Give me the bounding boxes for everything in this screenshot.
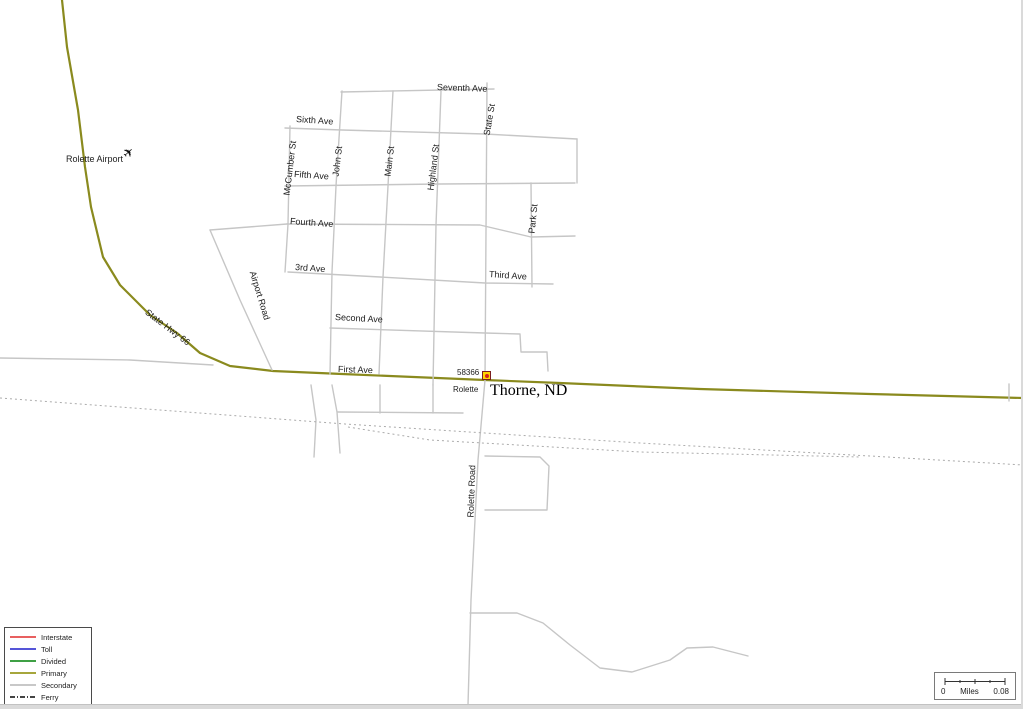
road-fourth-ave-west[interactable]: [210, 224, 287, 230]
map-label-first-ave: First Ave: [338, 365, 373, 375]
legend-swatch-icon: [10, 636, 36, 638]
road-park-st[interactable]: [531, 183, 532, 287]
map-label-seventh-ave: Seventh Ave: [437, 83, 488, 94]
legend-swatch-icon: [10, 672, 36, 674]
map-view[interactable]: Rolette AirportState Hwy 66Seventh AveSi…: [0, 0, 1023, 709]
legend-item-label: Toll: [41, 645, 52, 654]
legend-item-toll: Toll: [5, 643, 91, 655]
legend-item-divided: Divided: [5, 655, 91, 667]
road-south-lane-west[interactable]: [311, 385, 316, 457]
scale-ruler-icon: [939, 676, 1011, 687]
map-label-town-name: Rolette: [453, 386, 478, 394]
map-label-rolette-airport: Rolette Airport: [66, 155, 123, 164]
road-south-lane-east[interactable]: [332, 385, 340, 453]
scale-start: 0: [941, 687, 945, 696]
legend-swatch-icon: [10, 660, 36, 662]
road-sixth-ave[interactable]: [285, 128, 577, 139]
scale-labels: 0 Miles 0.08: [939, 687, 1011, 696]
road-railroad-main[interactable]: [0, 398, 1023, 465]
legend-item-label: Secondary: [41, 681, 77, 690]
road-rolette-road[interactable]: [468, 380, 485, 705]
scale-end: 0.08: [993, 687, 1009, 696]
legend-item-primary: Primary: [5, 667, 91, 679]
legend-item-label: Interstate: [41, 633, 72, 642]
road-main-st[interactable]: [379, 91, 393, 374]
town-marker-icon[interactable]: [482, 371, 491, 380]
legend-swatch-icon: [10, 684, 36, 686]
road-south-branch-road[interactable]: [470, 613, 748, 672]
city-label: Thorne, ND: [490, 382, 567, 400]
road-south-alley[interactable]: [338, 412, 463, 413]
map-label-zip-code: 58366: [457, 369, 479, 377]
map-roads-layer: [0, 0, 1023, 709]
legend-items: InterstateTollDividedPrimarySecondaryFer…: [5, 631, 91, 703]
legend-item-ferry: Ferry: [5, 691, 91, 703]
map-legend: InterstateTollDividedPrimarySecondaryFer…: [4, 627, 92, 706]
road-state-hwy-66[interactable]: [62, 0, 1023, 398]
scale-unit: Miles: [960, 687, 979, 696]
map-label-rolette-road: Rolette Road: [467, 465, 478, 518]
road-east-loop[interactable]: [485, 456, 549, 510]
legend-swatch-icon: [10, 696, 36, 698]
legend-item-label: Divided: [41, 657, 66, 666]
legend-item-secondary: Secondary: [5, 679, 91, 691]
road-railroad-siding[interactable]: [348, 427, 860, 457]
road-highland-st[interactable]: [433, 91, 441, 385]
legend-item-label: Primary: [41, 669, 67, 678]
road-west-frontage-road[interactable]: [0, 358, 213, 365]
legend-item-interstate: Interstate: [5, 631, 91, 643]
window-edge-bottom: [0, 704, 1023, 709]
town-marker-dot: [485, 374, 489, 378]
scale-bar: 0 Miles 0.08: [934, 672, 1016, 700]
legend-swatch-icon: [10, 648, 36, 650]
legend-item-label: Ferry: [41, 693, 59, 702]
road-john-st[interactable]: [330, 91, 342, 374]
